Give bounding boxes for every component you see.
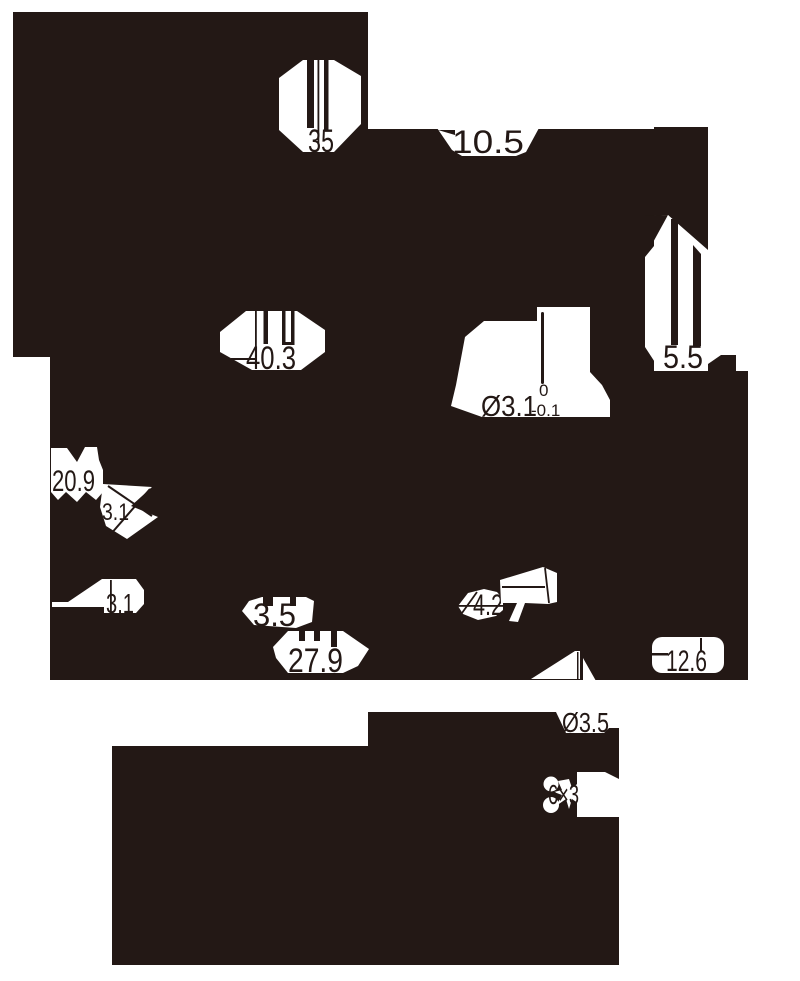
svg-text:0: 0 (539, 381, 548, 400)
svg-text:Ø3.1: Ø3.1 (481, 391, 537, 423)
svg-text:5.5: 5.5 (663, 339, 703, 375)
svg-text:4.2: 4.2 (473, 589, 503, 622)
svg-text:3.5: 3.5 (253, 597, 296, 633)
svg-text:40.3: 40.3 (246, 340, 296, 376)
svg-text:10.5: 10.5 (452, 124, 524, 160)
svg-text:35: 35 (308, 123, 334, 159)
svg-text:-0.1: -0.1 (531, 401, 560, 420)
svg-text:6×3: 6×3 (548, 779, 579, 810)
svg-text:27.9: 27.9 (288, 642, 343, 680)
svg-text:Ø3.5: Ø3.5 (562, 707, 609, 738)
svg-text:3.1: 3.1 (106, 588, 134, 619)
svg-text:12.6: 12.6 (666, 645, 707, 678)
svg-text:20.9: 20.9 (52, 465, 95, 498)
svg-text:3.1: 3.1 (102, 499, 129, 526)
